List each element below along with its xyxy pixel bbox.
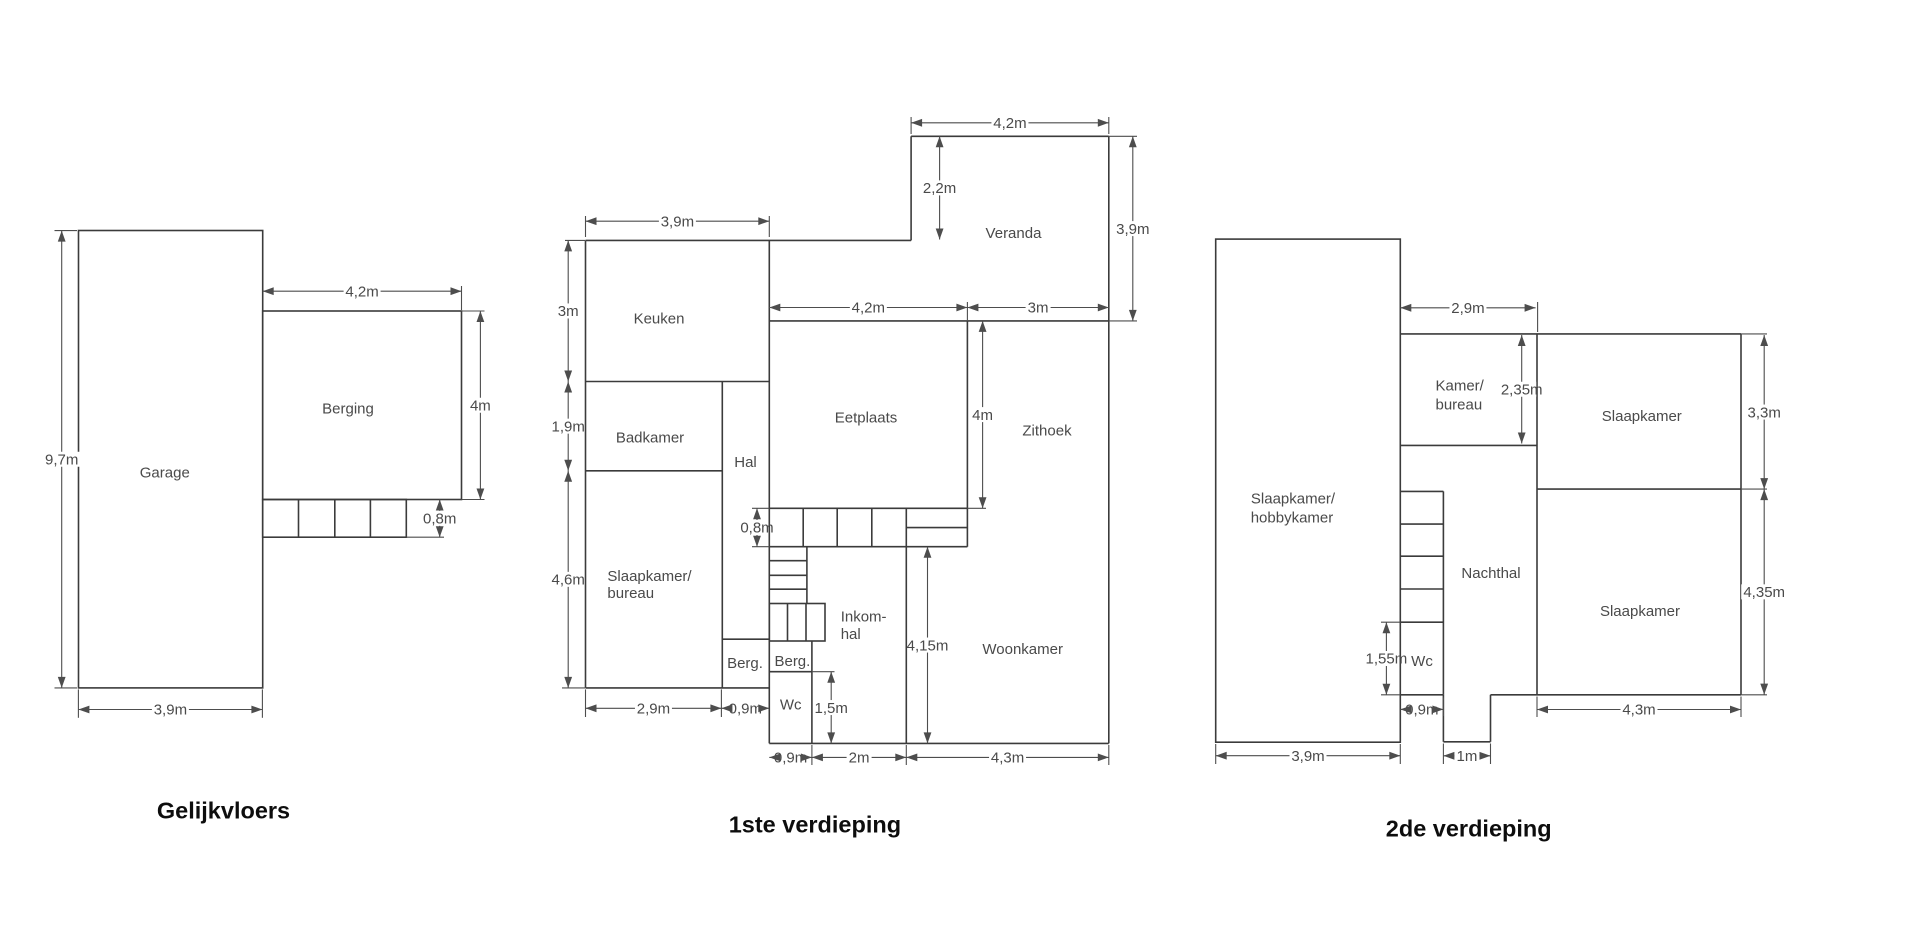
svg-text:Keuken: Keuken [634,311,685,328]
svg-text:1,5m: 1,5m [815,700,848,717]
svg-text:Slaapkamer: Slaapkamer [1602,408,1682,425]
svg-text:Nachthal: Nachthal [1461,565,1520,582]
svg-text:3,9m: 3,9m [1291,748,1324,765]
svg-text:Wc: Wc [780,697,802,714]
svg-text:2,9m: 2,9m [637,701,670,718]
svg-text:Garage: Garage [140,465,190,482]
svg-text:Gelijkvloers: Gelijkvloers [157,797,290,823]
svg-text:3,3m: 3,3m [1748,404,1781,421]
svg-text:Slaapkamer/: Slaapkamer/ [607,568,692,585]
svg-text:3,9m: 3,9m [661,213,694,230]
svg-text:Berging: Berging [322,401,374,418]
svg-text:4,2m: 4,2m [993,115,1026,132]
svg-text:Inkom-: Inkom- [841,608,887,625]
svg-text:2,9m: 2,9m [1451,300,1484,317]
svg-text:Hal: Hal [734,454,757,471]
svg-text:4,35m: 4,35m [1743,584,1785,601]
svg-text:3,9m: 3,9m [1116,221,1149,238]
svg-text:2de verdieping: 2de verdieping [1386,815,1552,841]
svg-text:Eetplaats: Eetplaats [835,410,898,427]
svg-text:Zithoek: Zithoek [1022,423,1072,440]
svg-text:4,2m: 4,2m [852,300,885,317]
svg-text:Berg.: Berg. [727,655,763,672]
svg-text:4,3m: 4,3m [991,750,1024,767]
svg-text:2,2m: 2,2m [923,180,956,197]
svg-text:Wc: Wc [1411,653,1433,670]
svg-text:Slaapkamer: Slaapkamer [1600,603,1680,620]
svg-text:4,2m: 4,2m [345,283,378,300]
svg-text:1,55m: 1,55m [1366,651,1408,668]
svg-text:2m: 2m [849,750,870,767]
svg-text:4,15m: 4,15m [907,637,949,654]
svg-text:bureau: bureau [1436,396,1483,413]
svg-text:4,6m: 4,6m [552,572,585,589]
svg-text:4m: 4m [972,407,993,424]
svg-text:0,9m: 0,9m [729,701,762,718]
svg-text:1,9m: 1,9m [552,418,585,435]
svg-text:2,35m: 2,35m [1501,381,1543,398]
svg-text:4m: 4m [470,397,491,414]
svg-text:Badkamer: Badkamer [616,430,684,447]
svg-text:bureau: bureau [607,585,654,602]
svg-text:Berg.: Berg. [774,653,810,670]
svg-text:hal: hal [841,626,861,643]
svg-text:Woonkamer: Woonkamer [982,641,1063,658]
svg-text:3,9m: 3,9m [154,702,187,719]
svg-text:Kamer/: Kamer/ [1436,378,1485,395]
svg-text:0,8m: 0,8m [740,520,773,537]
svg-text:9,7m: 9,7m [45,451,78,468]
svg-text:3m: 3m [558,303,579,320]
svg-text:Veranda: Veranda [986,225,1043,242]
svg-text:hobbykamer: hobbykamer [1251,510,1334,527]
svg-text:0,8m: 0,8m [423,511,456,528]
svg-text:1m: 1m [1457,748,1478,765]
svg-text:Slaapkamer/: Slaapkamer/ [1251,491,1336,508]
svg-text:1ste verdieping: 1ste verdieping [729,812,901,838]
svg-text:3m: 3m [1028,300,1049,317]
svg-text:4,3m: 4,3m [1622,702,1655,719]
